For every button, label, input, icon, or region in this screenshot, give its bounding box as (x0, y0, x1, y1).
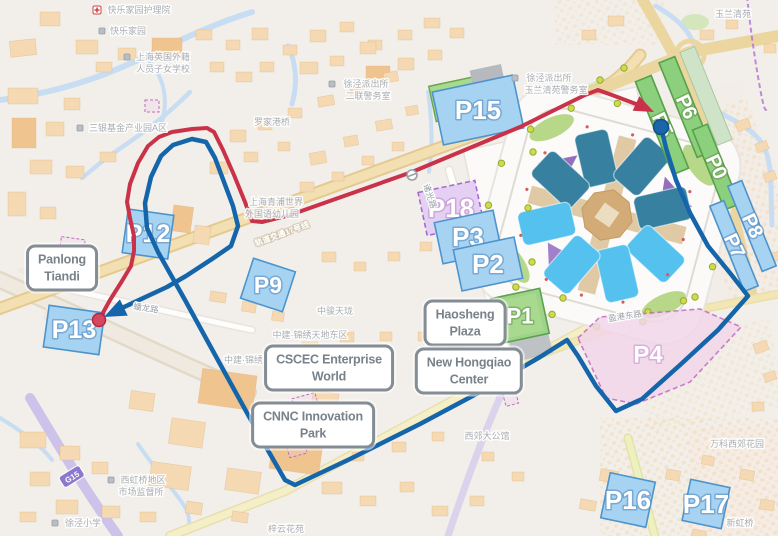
parking-lot-p13[interactable]: P13 (43, 305, 104, 354)
poi-dot-icon (108, 477, 114, 483)
parking-label-p13: P13 (52, 316, 96, 344)
poi-label: 罗家港桥 (254, 116, 290, 127)
poi-label: 玉兰清苑警务室 (524, 84, 587, 95)
poi-label: 梓云花苑 (268, 523, 304, 534)
callout-panlong-tiandi[interactable]: PanlongTiandi (26, 245, 98, 292)
poi-label: 徐泾派出所 (526, 72, 571, 83)
police-badge-icon (329, 81, 335, 87)
callout-cnnc-innovation-park-line2: Park (263, 425, 363, 442)
callout-haosheng-plaza-line1: Haosheng (436, 307, 495, 324)
poi-label: 快乐家园护理院 (107, 4, 170, 15)
callout-new-hongqiao-center-line2: Center (427, 371, 511, 388)
poi-label: 三银基金产业园A区 (89, 122, 167, 133)
route-blue-origin-dot (654, 120, 669, 135)
callout-new-hongqiao-center-line1: New Hongqiao (427, 355, 511, 372)
callout-haosheng-plaza-line2: Plaza (436, 323, 495, 340)
poi-label: 上海英国外籍 (136, 51, 190, 62)
callout-cnnc-innovation-park-line1: CNNC Innovation (263, 409, 363, 426)
poi-label: 中骏天珑 (317, 305, 353, 316)
poi-label: 上海青浦世界 (249, 196, 303, 207)
callout-cscec-enterprise-world-line1: CSCEC Enterprise (276, 352, 382, 369)
parking-label-p16: P16 (605, 485, 651, 515)
route-red-origin-dot (93, 314, 106, 327)
callout-cscec-enterprise-world-line2: World (276, 368, 382, 385)
parking-label-p1: P1 (507, 304, 534, 329)
callout-cnnc-innovation-park[interactable]: CNNC InnovationPark (251, 402, 375, 449)
poi-label: 玉兰清苑 (715, 8, 751, 19)
poi-label: 中建·锦绣天地东区 (273, 329, 348, 340)
parking-lot-p16[interactable]: P16 (601, 473, 656, 528)
poi-label: 徐泾派出所 (343, 78, 388, 89)
poi-label: 西虹桥地区 (120, 474, 165, 485)
poi-label: 市场监督所 (118, 486, 163, 497)
poi-label: 外国语幼儿园 (245, 208, 299, 219)
poi-label: 人员子女学校 (136, 63, 190, 74)
poi-dot-icon (77, 125, 83, 131)
callout-new-hongqiao-center[interactable]: New HongqiaoCenter (415, 348, 523, 395)
poi-label: 万科西郊花园 (710, 438, 764, 449)
poi-dot-icon (124, 54, 130, 60)
poi-dot-icon (52, 520, 58, 526)
callout-cscec-enterprise-world[interactable]: CSCEC EnterpriseWorld (264, 345, 394, 392)
police-badge-icon (512, 75, 518, 81)
poi-label: 西郊大公馆 (464, 430, 509, 441)
poi-label: 快乐家园 (110, 25, 146, 36)
parking-label-p9: P9 (254, 272, 282, 298)
parking-label-p4: P4 (633, 342, 663, 369)
parking-label-p15: P15 (455, 95, 501, 125)
parking-lot-p17[interactable]: P17 (682, 479, 730, 528)
poi-label: 二联警务室 (345, 90, 390, 101)
callout-panlong-tiandi-line1: Panlong (38, 252, 86, 269)
poi-dot-icon (99, 28, 105, 34)
poi-label: 新虹桥 (726, 517, 753, 528)
callout-panlong-tiandi-line2: Tiandi (38, 268, 86, 285)
shuttle-route-map: P12P13P9P15P18P3P2P1P4P16P17P5P6P0P8P7快乐… (0, 0, 778, 536)
callout-haosheng-plaza[interactable]: HaoshengPlaza (424, 300, 507, 347)
poi-label: 徐泾小学 (65, 517, 101, 528)
parking-label-p17: P17 (683, 489, 729, 519)
map-canvas: P12P13P9P15P18P3P2P1P4P16P17P5P6P0P8P7快乐… (0, 0, 778, 536)
parking-label-p2: P2 (472, 249, 504, 279)
